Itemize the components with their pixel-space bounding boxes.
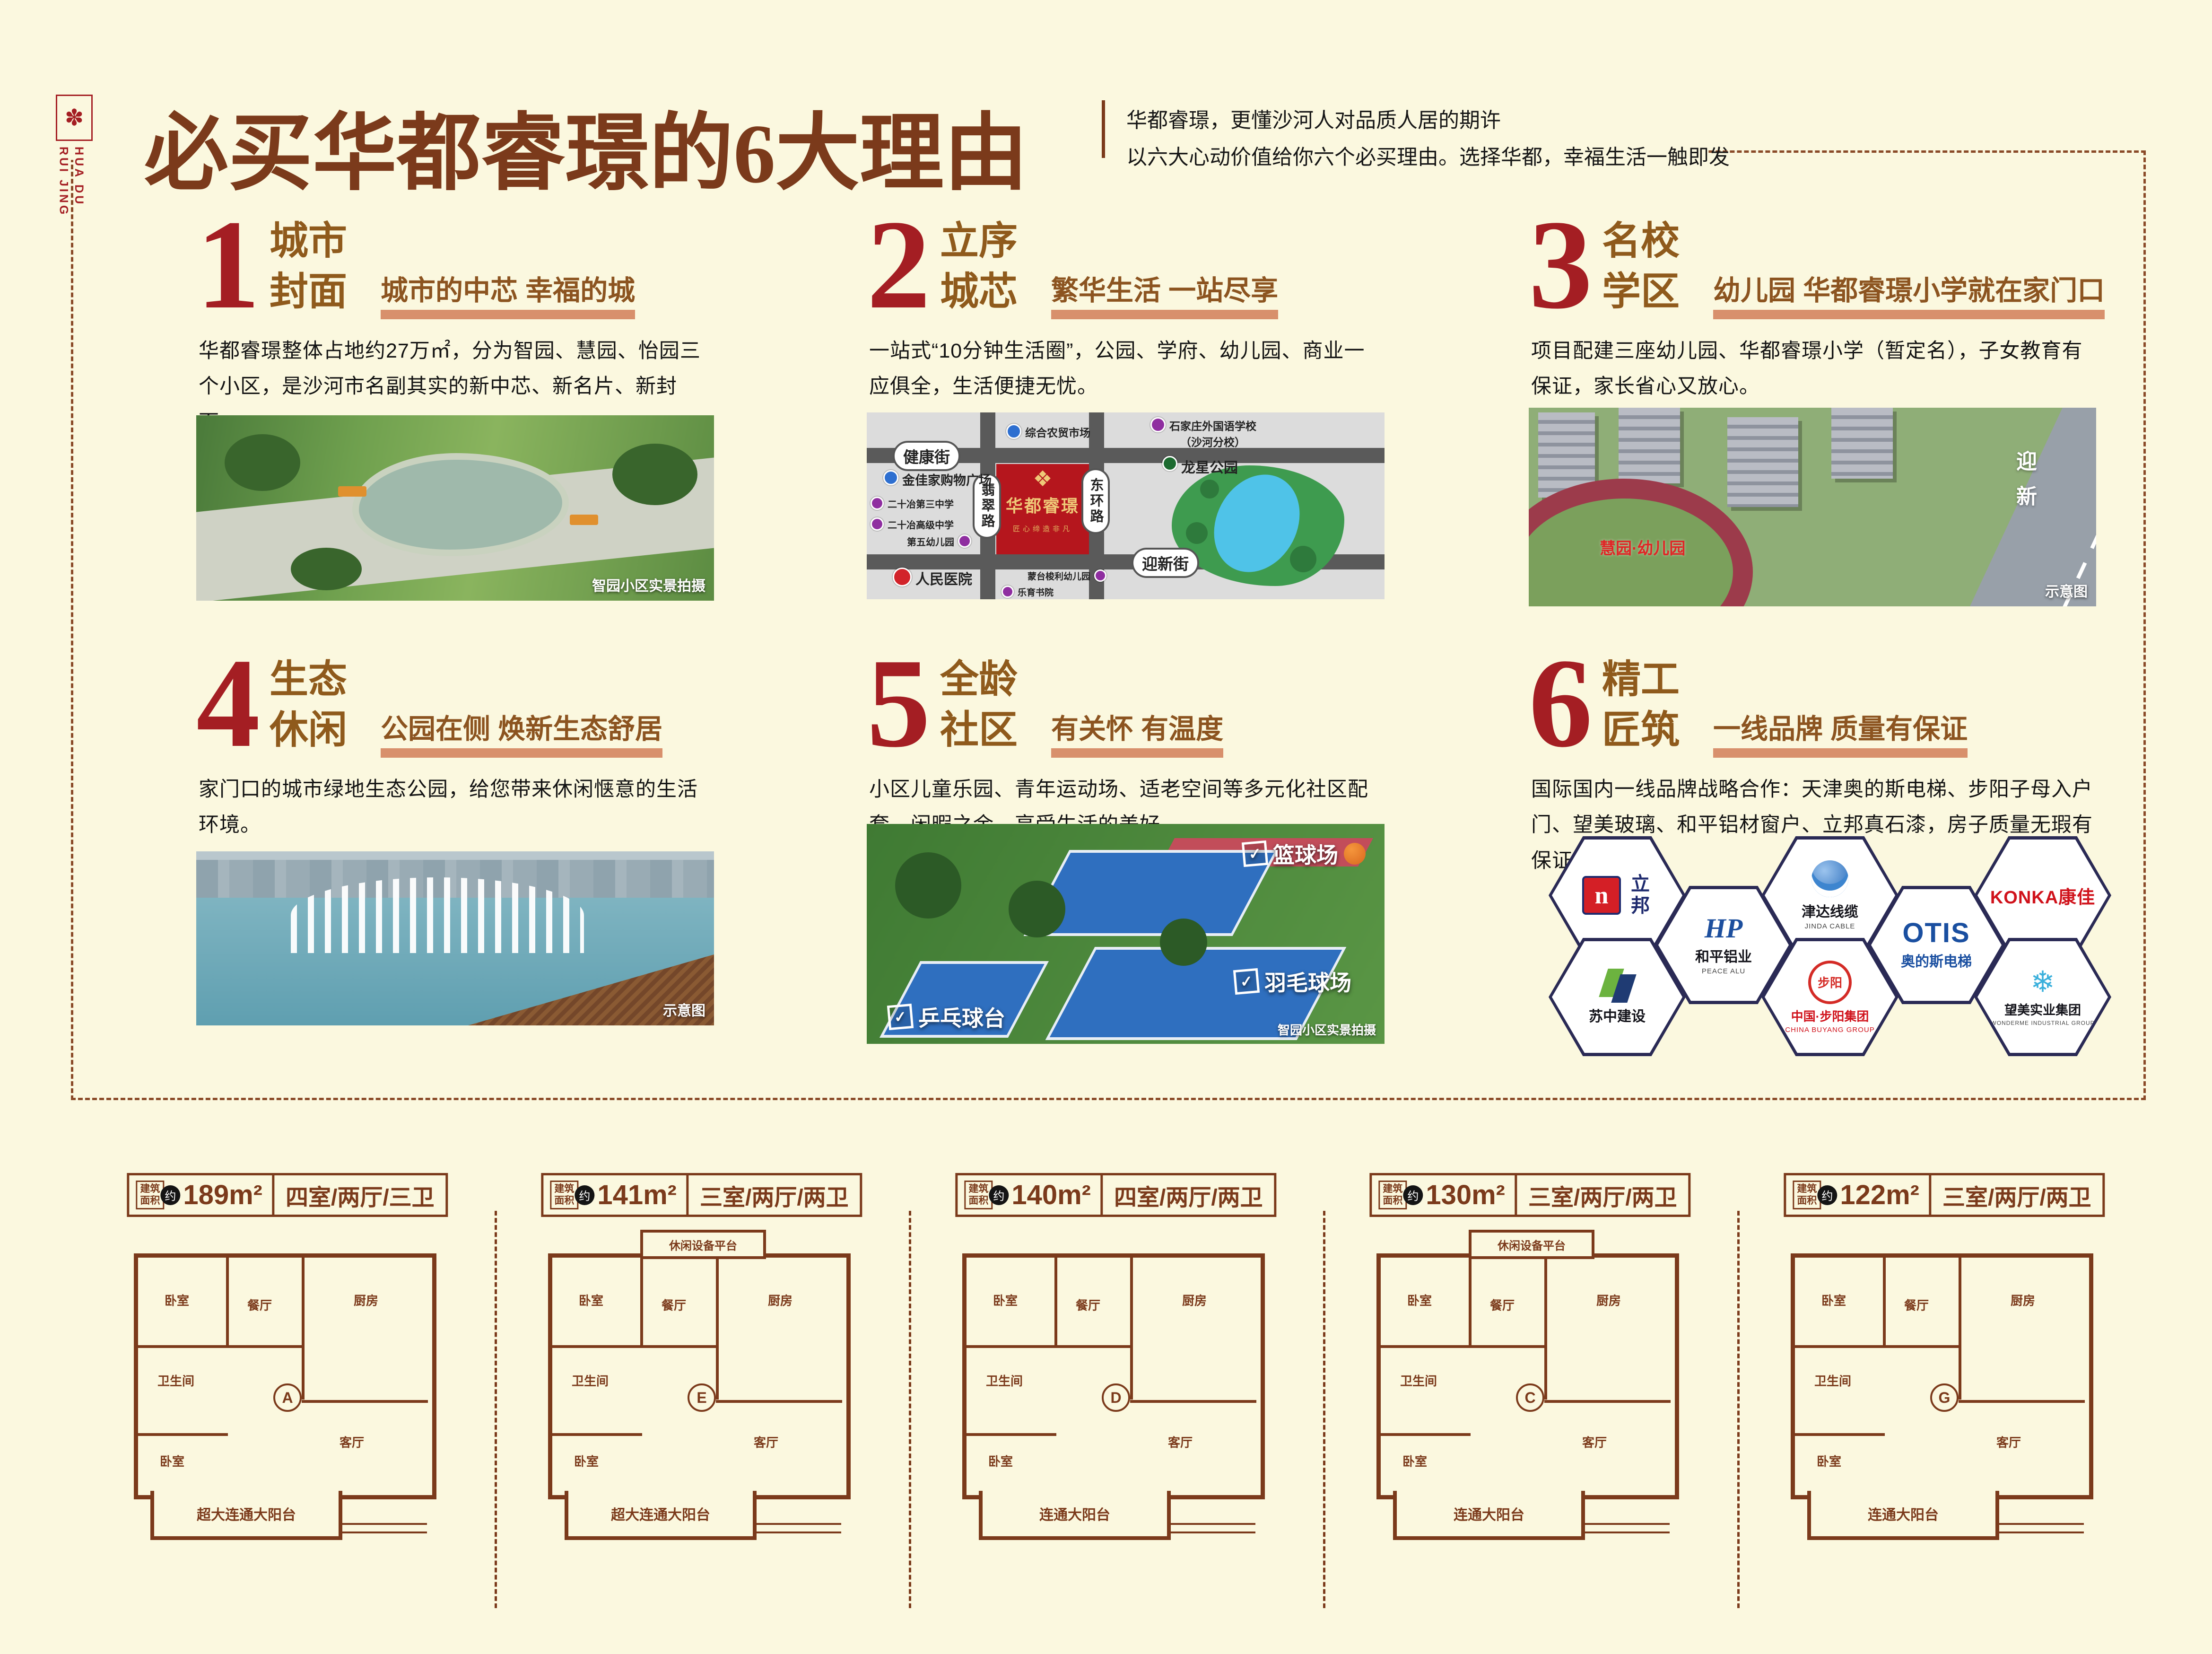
- section-4-body: 家门口的城市绿地生态公园，给您带来休闲惬意的生活环境。: [199, 772, 714, 843]
- road-name-vertical: 迎新: [2009, 450, 2039, 520]
- room-bed: 卧室: [1817, 1452, 1841, 1470]
- leisure-platform: 休闲设备平台: [1469, 1230, 1594, 1259]
- poi-montessori: 蒙台梭利幼儿园: [1028, 569, 1106, 582]
- floorplan-5-unit: G: [1930, 1383, 1959, 1412]
- section-3-title-line2: 学区: [1602, 267, 1680, 317]
- poi-school3-label: 二十冶第三中学: [888, 497, 954, 510]
- poi-hospital: 人民医院: [893, 568, 972, 588]
- section-2-number: 2: [867, 210, 931, 319]
- poi-school-senior-label: 二十冶高级中学: [888, 517, 954, 531]
- peacealu-logo-icon: HP: [1705, 915, 1743, 942]
- park-tree: [1186, 522, 1208, 544]
- check-icon: ✓: [1233, 968, 1260, 995]
- poi-park: 龙星公园: [1162, 456, 1238, 477]
- fountain-jets: [291, 877, 584, 953]
- building: [1831, 408, 1893, 479]
- floorplan-4: 建筑面积 约 130m² 三室/两厅/两卫 休闲设备平台 卧室 餐厅 厨房 卫生…: [1323, 1159, 1737, 1636]
- photo-1-caption: 智园小区实景拍摄: [592, 574, 705, 595]
- floorplan-1-layout: 四室/两厅/三卫: [274, 1175, 446, 1215]
- brand-jinda-sub: JINDA CABLE: [1805, 922, 1855, 930]
- poi-mall: 金佳家购物广场: [883, 470, 992, 489]
- floorplan-1-label: 建筑面积 约 189m² 四室/两厅/三卫: [127, 1173, 448, 1217]
- brand-otis-sub: 奥的斯电梯: [1901, 950, 1972, 971]
- floorplan-1: 建筑面积 约 189m² 四室/两厅/三卫 卧室 餐厅 厨房 卫生间 客厅 卧室…: [80, 1159, 495, 1636]
- room-dining: 餐厅: [1904, 1296, 1929, 1313]
- floorplan-1-area: 189m²: [183, 1179, 262, 1211]
- room-kitchen: 厨房: [2011, 1291, 2035, 1309]
- page-title: 必买华都睿璟的6大理由: [144, 85, 1028, 207]
- section-1-number: 1: [196, 210, 260, 319]
- garden-bush: [291, 548, 362, 590]
- floorplan-5-layout: 三室/两厅/两卫: [1931, 1175, 2103, 1215]
- floorplan-2-label: 建筑面积 约 141m² 三室/两厅/两卫: [541, 1173, 862, 1217]
- floorplan-1-balcony: 超大连通大阳台: [150, 1491, 342, 1540]
- brand-buyang-sub: CHINA BUYANG GROUP: [1785, 1026, 1874, 1034]
- room-living: 客厅: [1582, 1433, 1607, 1451]
- building: [1727, 417, 1798, 507]
- room-kitchen: 厨房: [354, 1291, 378, 1309]
- poi-market-label: 综合农贸市场: [1025, 424, 1090, 440]
- garden-bush: [225, 434, 300, 491]
- area-badge: 建筑面积: [550, 1181, 578, 1209]
- room-kitchen: 厨房: [768, 1291, 792, 1309]
- section-1-title: 城市 封面: [270, 216, 347, 317]
- park-tree: [1200, 480, 1219, 499]
- area-badge: 建筑面积: [136, 1181, 164, 1209]
- section-3-number: 3: [1529, 210, 1593, 319]
- poi-mall-label: 金佳家购物广场: [902, 470, 992, 489]
- section-4-number: 4: [196, 649, 260, 758]
- garden-bush: [612, 444, 697, 505]
- brand-peacealu-name: 和平铝业: [1695, 945, 1752, 966]
- wonderme-logo-icon: ❄: [2030, 968, 2055, 997]
- room-bath: 卫生间: [1400, 1372, 1437, 1389]
- poi-hospital-label: 人民医院: [915, 568, 972, 588]
- street-label-yingxin: 迎新街: [1132, 548, 1199, 578]
- section-2-body: 一站式“10分钟生活圈”，公园、学府、幼儿园、商业一应俱全，生活便捷无忧。: [869, 333, 1385, 405]
- section-4-title-line2: 休闲: [270, 705, 347, 756]
- floorplan-2-area: 141m²: [597, 1179, 677, 1211]
- leisure-platform: 休闲设备平台: [640, 1230, 766, 1259]
- brand-wonderme-name: 望美实业集团: [2004, 1000, 2081, 1018]
- floorplan-3-label: 建筑面积 约 140m² 四室/两厅/两卫: [955, 1173, 1276, 1217]
- window-lines: [1585, 1523, 1670, 1533]
- poi-foreign-school: 石家庄外国语学校 （沙河分校）: [1150, 417, 1256, 449]
- room-bed: 卧室: [165, 1291, 189, 1309]
- section-5-title: 全龄 社区: [940, 655, 1018, 755]
- floorplan-3-area: 140m²: [1011, 1179, 1091, 1211]
- section-3-title-line1: 名校: [1602, 216, 1680, 267]
- garden-bench: [570, 515, 598, 525]
- logo-vertical-text: HUA DU RUI JING: [56, 147, 87, 217]
- project-emblem-icon: ❖: [1033, 468, 1052, 490]
- section-3-title: 名校 学区: [1602, 216, 1680, 317]
- room-bed: 卧室: [988, 1452, 1013, 1470]
- photo-3-caption: 示意图: [2045, 580, 2088, 601]
- section-6-number: 6: [1529, 649, 1593, 758]
- floorplan-3: 建筑面积 约 140m² 四室/两厅/两卫 卧室 餐厅 厨房 卫生间 客厅 卧室…: [909, 1159, 1323, 1636]
- street-label-jiankang: 健康街: [893, 441, 960, 471]
- photo-sports-courts: ✓ 篮球场 ✓ 羽毛球场 ✓ 乒乓球台 智园小区实景拍摄: [867, 824, 1385, 1044]
- brand-otis-name: OTIS: [1902, 919, 1970, 947]
- floorplan-1-drawing: 卧室 餐厅 厨房 卫生间 客厅 卧室 A 超大连通大阳台: [131, 1230, 444, 1570]
- room-bath: 卫生间: [572, 1372, 609, 1389]
- school-icon: [1150, 417, 1166, 432]
- building: [1619, 408, 1680, 483]
- floorplan-3-layout: 四室/两厅/两卫: [1103, 1175, 1274, 1215]
- tree: [1009, 881, 1065, 937]
- section-3-tagline: 幼儿园 华都睿璟小学就在家门口: [1713, 268, 2105, 319]
- section-2-tagline: 繁华生活 一站尽享: [1051, 268, 1278, 319]
- poi-school-senior: 二十冶高级中学: [871, 517, 954, 531]
- basketball-icon: [1344, 843, 1366, 865]
- room-bed: 卧室: [160, 1452, 184, 1470]
- poi-school3: 二十冶第三中学: [871, 497, 954, 510]
- label-basketball-text: 篮球场: [1273, 838, 1338, 869]
- floorplan-4-drawing: 休闲设备平台 卧室 餐厅 厨房 卫生间 客厅 卧室 C 连通大阳台: [1374, 1230, 1686, 1570]
- poster-canvas: ✽ HUA DU RUI JING 必买华都睿璟的6大理由 华都睿璟，更懂沙河人…: [0, 0, 2212, 1654]
- section-3-body: 项目配建三座幼儿园、华都睿璟小学（暂定名），子女教育有保证，家长省心又放心。: [1531, 333, 2099, 405]
- room-dining: 餐厅: [1076, 1296, 1100, 1313]
- section-1-title-line2: 封面: [270, 267, 347, 317]
- photo-school-aerial: 慧园·幼儿园 迎新 示意图: [1529, 408, 2096, 606]
- section-6-tagline: 一线品牌 质量有保证: [1713, 707, 1968, 758]
- room-living: 客厅: [1168, 1433, 1193, 1451]
- floorplan-4-area: 130m²: [1426, 1179, 1505, 1211]
- approx-badge: 约: [1817, 1185, 1837, 1205]
- brand-hex-grid: n 立邦 津达线缆 JINDA CABLE KONKA康佳 HP 和平铝业 PE…: [1534, 836, 2125, 1063]
- header-divider: [1102, 100, 1105, 158]
- photo-5-caption: 智园小区实景拍摄: [1278, 1021, 1376, 1038]
- suzhong-logo-icon: [1601, 969, 1634, 1002]
- street-label-donghuan: 东环路: [1081, 468, 1110, 534]
- floorplan-5-area: 122m²: [1840, 1179, 1919, 1211]
- room-bed: 卧室: [1402, 1452, 1427, 1470]
- nippon-logo-icon: n 立邦: [1582, 874, 1652, 917]
- room-bath: 卫生间: [986, 1372, 1023, 1389]
- window-lines: [1999, 1523, 2084, 1533]
- section-5-title-line1: 全龄: [940, 655, 1018, 705]
- huadu-logo-icon: ✽: [56, 95, 93, 141]
- poi-montessori-label: 蒙台梭利幼儿园: [1028, 569, 1090, 582]
- poi-market: 综合农贸市场: [1006, 424, 1090, 440]
- floorplan-5-label: 建筑面积 约 122m² 三室/两厅/两卫: [1784, 1173, 2105, 1217]
- poi-foreign-school-line2: （沙河分校）: [1169, 433, 1256, 449]
- floorplan-5: 建筑面积 约 122m² 三室/两厅/两卫 卧室 餐厅 厨房 卫生间 客厅 卧室…: [1737, 1159, 2151, 1636]
- area-badge: 建筑面积: [1793, 1181, 1821, 1209]
- mall-icon: [883, 470, 898, 485]
- poi-kindergarten5: 第五幼儿园: [907, 534, 971, 548]
- room-bed: 卧室: [579, 1291, 603, 1309]
- floorplan-2-balcony: 超大连通大阳台: [565, 1491, 757, 1540]
- label-pingpong-text: 乒乓球台: [918, 1001, 1005, 1033]
- poi-foreign-school-label: 石家庄外国语学校 （沙河分校）: [1169, 417, 1256, 449]
- floorplan-2-drawing: 休闲设备平台 卧室 餐厅 厨房 卫生间 客厅 卧室 E 超大连通大阳台: [546, 1230, 858, 1570]
- poi-academy-label: 乐育书院: [1018, 586, 1054, 598]
- approx-badge: 约: [160, 1185, 180, 1205]
- window-lines: [756, 1523, 841, 1533]
- poi-foreign-school-line1: 石家庄外国语学校: [1169, 417, 1256, 433]
- garden-bench: [338, 486, 366, 497]
- section-5-title-line2: 社区: [940, 705, 1018, 756]
- label-basketball: ✓ 篮球场: [1243, 838, 1366, 869]
- floorplan-1-unit: A: [273, 1383, 302, 1412]
- hospital-icon: [893, 568, 912, 586]
- label-badminton-text: 羽毛球场: [1264, 966, 1351, 997]
- section-4-title-line1: 生态: [270, 655, 347, 705]
- floorplan-3-balcony: 连通大阳台: [979, 1491, 1171, 1540]
- check-icon: ✓: [1242, 840, 1268, 867]
- room-bed: 卧室: [574, 1452, 599, 1470]
- brand-suzhong-name: 苏中建设: [1589, 1005, 1646, 1025]
- brand-peacealu-sub: PEACE ALU: [1702, 967, 1745, 975]
- brand-nippon-name: 立邦: [1625, 874, 1652, 917]
- poi-academy: 乐育书院: [1001, 586, 1054, 598]
- section-2-title: 立序 城芯: [940, 216, 1018, 317]
- room-bed: 卧室: [1407, 1291, 1432, 1309]
- section-6-title-line1: 精工: [1602, 655, 1680, 705]
- room-living: 客厅: [754, 1433, 778, 1451]
- room-bath: 卫生间: [157, 1372, 194, 1389]
- project-name: 华都睿璟: [1006, 492, 1080, 517]
- section-5-tagline: 有关怀 有温度: [1051, 707, 1223, 758]
- room-kitchen: 厨房: [1182, 1291, 1207, 1309]
- window-lines: [1170, 1523, 1255, 1533]
- subtitle-line1: 华都睿璟，更懂沙河人对品质人居的期许: [1126, 103, 1501, 133]
- tree: [1160, 919, 1207, 966]
- floorplan-3-unit: D: [1102, 1383, 1130, 1412]
- section-2-title-line2: 城芯: [940, 267, 1018, 317]
- room-living: 客厅: [340, 1433, 364, 1451]
- room-kitchen: 厨房: [1596, 1291, 1621, 1309]
- area-badge: 建筑面积: [1378, 1181, 1407, 1209]
- jinda-logo-icon: [1811, 860, 1848, 897]
- kindergarten-overlay-label: 慧园·幼儿园: [1600, 535, 1685, 559]
- park-icon: [1162, 456, 1177, 471]
- kindergarten-icon: [958, 534, 971, 548]
- market-icon: [1006, 424, 1021, 439]
- label-pingpong: ✓ 乒乓球台: [888, 1001, 1005, 1033]
- approx-badge: 约: [989, 1185, 1009, 1205]
- photo-lake-fountain: 示意图: [196, 851, 714, 1025]
- floorplan-4-label: 建筑面积 约 130m² 三室/两厅/两卫: [1369, 1173, 1690, 1217]
- window-lines: [342, 1523, 427, 1533]
- section-1-tagline: 城市的中芯 幸福的城: [381, 268, 635, 319]
- floorplan-4-unit: C: [1516, 1383, 1544, 1412]
- label-badminton: ✓ 羽毛球场: [1234, 966, 1351, 997]
- floorplan-2: 建筑面积 约 141m² 三室/两厅/两卫 休闲设备平台 卧室 餐厅 厨房 卫生…: [495, 1159, 909, 1636]
- photo-community-garden: 智园小区实景拍摄: [196, 415, 714, 601]
- approx-badge: 约: [575, 1185, 594, 1205]
- room-bed: 卧室: [993, 1291, 1018, 1309]
- subtitle-line2: 以六大心动价值给你六个必买理由。选择华都，幸福生活一触即发: [1126, 140, 1730, 170]
- approx-badge: 约: [1403, 1185, 1423, 1205]
- floorplan-4-layout: 三室/两厅/两卫: [1517, 1175, 1689, 1215]
- room-dining: 餐厅: [1490, 1296, 1515, 1313]
- section-6-title: 精工 匠筑: [1602, 655, 1680, 755]
- floorplan-5-balcony: 连通大阳台: [1807, 1491, 1999, 1540]
- academy-icon: [1001, 586, 1014, 598]
- project-block: ❖ 华都睿璟 匠心缔造非凡: [996, 464, 1089, 554]
- school-icon: [871, 517, 884, 531]
- section-6-title-line2: 匠筑: [1602, 705, 1680, 756]
- floorplan-5-drawing: 卧室 餐厅 厨房 卫生间 客厅 卧室 G 连通大阳台: [1788, 1230, 2100, 1570]
- floorplan-2-unit: E: [688, 1383, 716, 1412]
- tree: [895, 852, 961, 919]
- kindergarten-icon: [1094, 569, 1106, 582]
- basketball-court: [1024, 850, 1279, 936]
- poi-kindergarten5-label: 第五幼儿园: [907, 534, 954, 548]
- brand-jinda-name: 津达线缆: [1802, 900, 1858, 921]
- brand-konka-name: KONKA康佳: [1990, 883, 2095, 909]
- location-map: 健康街 迎新街 翡翠路 东环路 ❖ 华都睿璟 匠心缔造非凡 龙星公园 综合农贸市…: [867, 412, 1385, 599]
- photo-4-caption: 示意图: [663, 999, 705, 1020]
- section-1-title-line1: 城市: [270, 216, 347, 267]
- brand-wonderme-sub: WONDERME INDUSTRIAL GROUP: [1991, 1020, 2094, 1026]
- area-badge: 建筑面积: [964, 1181, 993, 1209]
- check-icon: ✓: [887, 1004, 914, 1030]
- school-icon: [871, 497, 884, 510]
- section-4-tagline: 公园在侧 焕新生态舒居: [381, 707, 662, 758]
- floorplan-2-layout: 三室/两厅/两卫: [688, 1175, 860, 1215]
- section-2-title-line1: 立序: [940, 216, 1018, 267]
- room-dining: 餐厅: [247, 1296, 272, 1313]
- room-bath: 卫生间: [1814, 1372, 1851, 1389]
- poi-park-label: 龙星公园: [1181, 456, 1238, 477]
- floorplan-4-balcony: 连通大阳台: [1393, 1491, 1585, 1540]
- brand-buyang-name: 中国·步阳集团: [1791, 1007, 1869, 1024]
- project-slogan: 匠心缔造非凡: [1013, 524, 1072, 534]
- floorplan-3-drawing: 卧室 餐厅 厨房 卫生间 客厅 卧室 D 连通大阳台: [960, 1230, 1272, 1570]
- room-living: 客厅: [1996, 1433, 2021, 1451]
- room-bed: 卧室: [1821, 1291, 1846, 1309]
- section-5-number: 5: [867, 649, 931, 758]
- section-4-title: 生态 休闲: [270, 655, 347, 755]
- buyang-logo-icon: 步阳: [1808, 961, 1852, 1004]
- park-tree: [1290, 546, 1316, 572]
- room-dining: 餐厅: [662, 1296, 686, 1313]
